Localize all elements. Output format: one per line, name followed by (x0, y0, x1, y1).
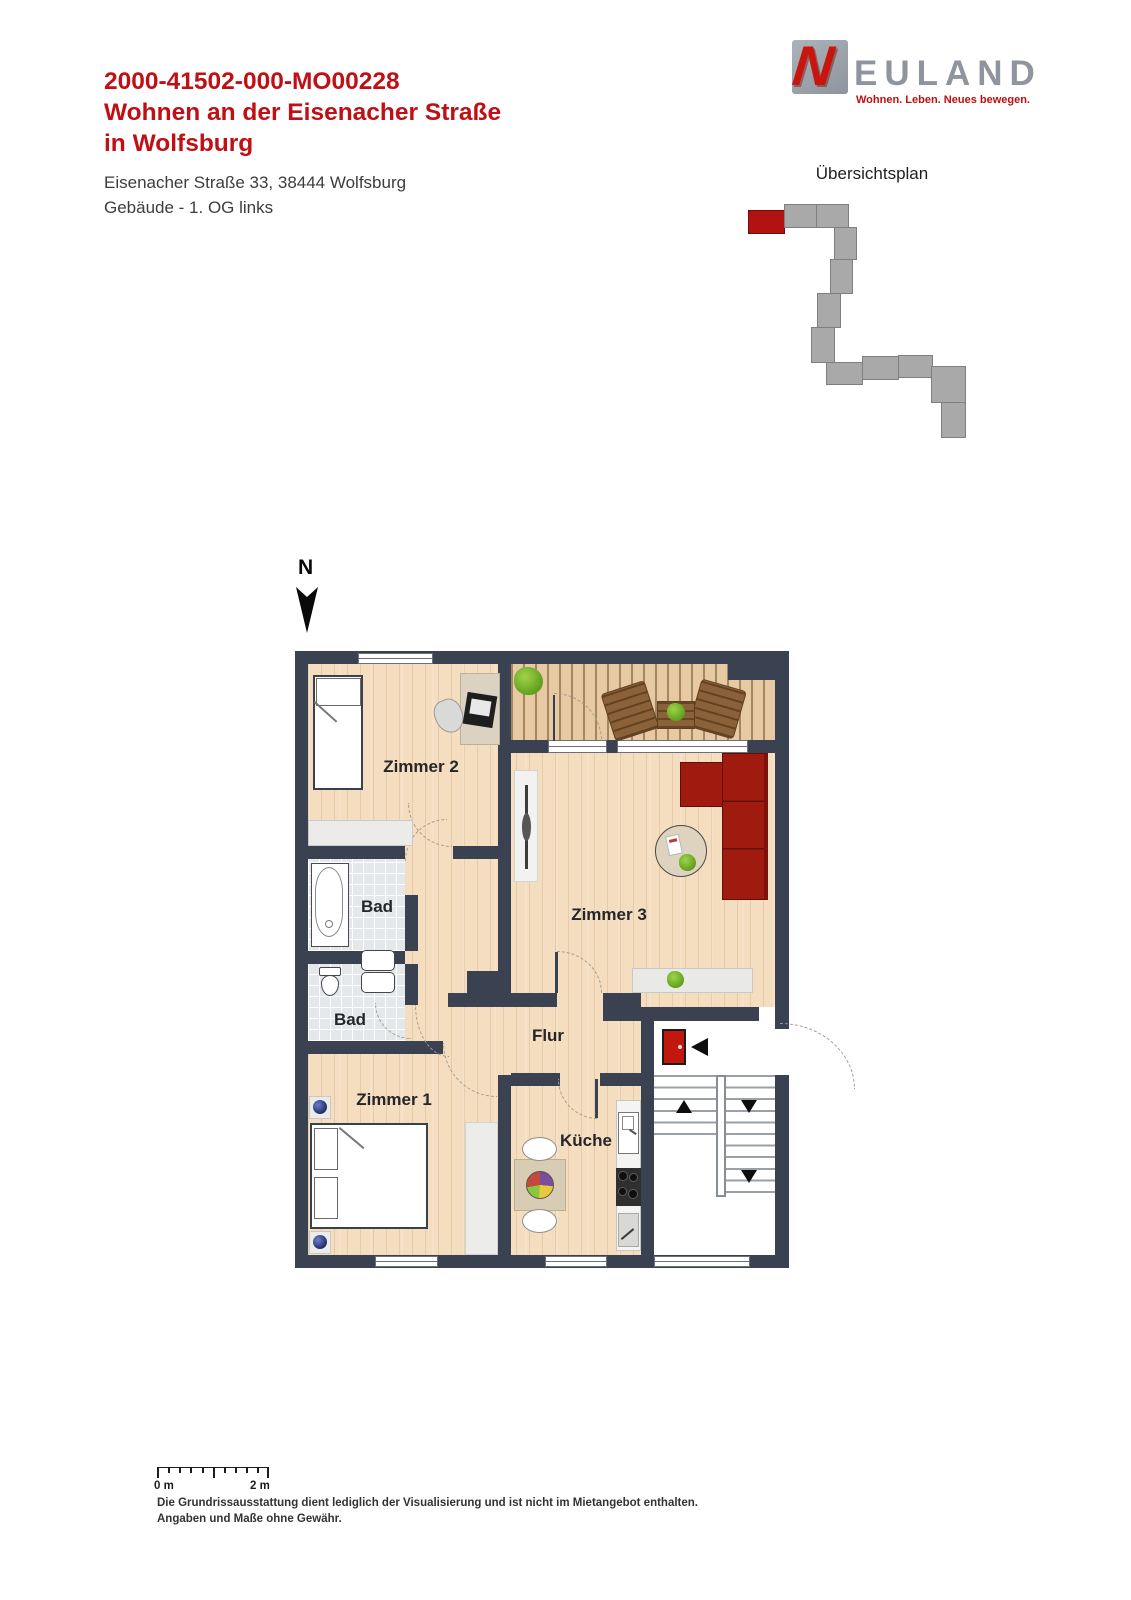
room-label-zimmer3: Zimmer 3 (571, 905, 647, 925)
sink-basin (622, 1116, 634, 1130)
disclaimer-line2: Angaben und Maße ohne Gewähr. (157, 1511, 698, 1527)
overview-building-block (826, 362, 863, 385)
knife-icon (621, 1228, 635, 1240)
room-label-bad-bottom: Bad (334, 1010, 366, 1030)
room-label-kueche: Küche (560, 1131, 612, 1151)
balcony-door-window (548, 740, 607, 753)
wall-stairwell-left (641, 1007, 654, 1255)
header-block: 2000-41502-000-MO00228 Wohnen an der Eis… (104, 66, 501, 159)
north-arrow-icon (296, 587, 318, 633)
kitchen-chair-top (522, 1137, 557, 1161)
pillow (314, 1177, 338, 1219)
nightstand-plant-blue (313, 1100, 327, 1114)
bathtub (311, 863, 349, 947)
balcony-plant (514, 667, 543, 695)
logo-tagline: Wohnen. Leben. Neues bewegen. (856, 94, 1030, 106)
balcony-table-plant (667, 703, 685, 721)
wall-landing-top (641, 1007, 759, 1021)
overview-building-block (830, 259, 853, 294)
disclaimer-line1: Die Grundrissausstattung dient lediglich… (157, 1495, 698, 1511)
door-leaf-kueche (595, 1079, 598, 1118)
page-title: Wohnen an der Eisenacher Straße (104, 97, 501, 128)
laptop (463, 692, 498, 728)
stairs-up-arrow-icon (676, 1100, 692, 1113)
sideboard-plant (667, 971, 684, 988)
door-handle-icon (678, 1045, 682, 1049)
unit-info: Gebäude - 1. OG links (104, 195, 406, 220)
sideboard-zimmer2 (308, 820, 413, 846)
sink-bottom (361, 972, 395, 993)
room-label-zimmer2: Zimmer 2 (383, 757, 459, 777)
overview-building-block (898, 355, 933, 378)
wall-kueche-top-right (600, 1073, 641, 1086)
page-title-line2: in Wolfsburg (104, 128, 501, 159)
wall-kueche-top-left (511, 1073, 560, 1086)
disclaimer-text: Die Grundrissausstattung dient lediglich… (157, 1495, 698, 1527)
overview-building-block (811, 327, 835, 363)
overview-building-block (817, 293, 841, 328)
window-zimmer3-balcony (617, 740, 748, 753)
wall-bad-top-right (405, 895, 418, 951)
address-block: Eisenacher Straße 33, 38444 Wolfsburg Ge… (104, 170, 406, 220)
nightstand-plant-blue (313, 1235, 327, 1249)
stair-handrail (716, 1075, 726, 1197)
wall-zimmer1-top (308, 1041, 443, 1054)
wall-chimney-stub (467, 971, 498, 993)
burner-icon (619, 1188, 626, 1195)
overview-building-block (834, 227, 857, 260)
wardrobe-zimmer1 (465, 1122, 498, 1255)
overview-building-block (931, 366, 966, 403)
stove (616, 1168, 641, 1206)
room-label-zimmer1: Zimmer 1 (356, 1090, 432, 1110)
wall-corridor-end (448, 993, 498, 1007)
wall-zimmer3-bottom-left (511, 993, 557, 1007)
nightstand-bottom (309, 1231, 331, 1254)
sofa-body (722, 753, 768, 900)
floor-plan: Zimmer 2 Zimmer 3 Bad Bad Zimmer 1 Flur … (295, 651, 789, 1268)
bathtub-drain-icon (325, 920, 333, 928)
north-label: N (298, 556, 313, 580)
wall-balcony-pier-mid (607, 740, 617, 753)
magazine-cover-mark (669, 838, 677, 843)
burner-icon (619, 1172, 627, 1180)
kitchen-chair-bottom (522, 1209, 557, 1233)
logo-n-icon: N (790, 38, 836, 94)
blanket-fold-line (339, 1127, 364, 1149)
pillow (314, 1128, 338, 1170)
room-label-flur: Flur (532, 1026, 564, 1046)
fruit-bowl (526, 1171, 554, 1199)
overview-building-block (816, 204, 849, 228)
window-kueche (545, 1256, 607, 1267)
burner-icon (630, 1174, 637, 1181)
laptop-screen (469, 699, 491, 717)
wall-right-lower (775, 1075, 789, 1268)
wardrobe-zimmer3 (514, 770, 538, 882)
overview-highlight-block (748, 210, 785, 234)
stairs-down-arrow-icon (741, 1100, 757, 1113)
sideboard-zimmer3 (632, 968, 753, 993)
door-leaf-zimmer3 (555, 952, 558, 993)
overview-building-block (862, 356, 899, 380)
wall-zimmer2-bottom-stub (453, 846, 498, 859)
rug-plant (679, 854, 696, 871)
sink-top (361, 950, 395, 971)
cutting-board (618, 1213, 639, 1247)
wall-left (295, 651, 308, 1268)
stairs-down-arrow-icon (741, 1170, 757, 1183)
sofa-chaise (680, 762, 725, 807)
scale-zero-label: 0 m (154, 1480, 174, 1492)
door-leaf-balcony (553, 695, 555, 741)
entrance-door (662, 1029, 686, 1065)
wall-right-upper (775, 651, 789, 1029)
floorplan-sheet: 2000-41502-000-MO00228 Wohnen an der Eis… (0, 0, 1131, 1600)
wall-zimmer2-bottom (308, 846, 405, 859)
wall-balcony-pier-left (511, 740, 548, 753)
wall-bad-bottom-right (405, 964, 418, 1005)
logo-wordmark: EULAND (854, 56, 1042, 91)
nightstand-top (309, 1096, 331, 1119)
overview-title: Übersichtsplan (762, 164, 982, 184)
wall-balcony-corner (728, 664, 775, 680)
wall-zimmer1-kueche (498, 1075, 511, 1255)
address-line: Eisenacher Straße 33, 38444 Wolfsburg (104, 170, 406, 195)
scale-ruler (157, 1467, 269, 1478)
scale-two-label: 2 m (250, 1480, 270, 1492)
burner-icon (629, 1190, 637, 1198)
wall-zimmer3-bottom-right (603, 993, 641, 1021)
entrance-arrow-icon (691, 1038, 708, 1056)
door-arc-building-entry (780, 1023, 855, 1089)
kitchen-sink (618, 1112, 639, 1154)
company-logo: N EULAND Wohnen. Leben. Neues bewegen. (780, 36, 1040, 106)
window-stairwell (654, 1256, 750, 1267)
listing-code: 2000-41502-000-MO00228 (104, 66, 501, 97)
window-zimmer1 (375, 1256, 438, 1267)
wardrobe-handle (522, 813, 531, 841)
room-label-bad-top: Bad (361, 897, 393, 917)
window-zimmer2 (358, 653, 433, 664)
wall-balcony-pier-right (748, 740, 775, 753)
pillow (316, 678, 361, 706)
overview-building-block (784, 204, 817, 228)
overview-building-block (941, 402, 966, 438)
bed-double (310, 1123, 428, 1229)
